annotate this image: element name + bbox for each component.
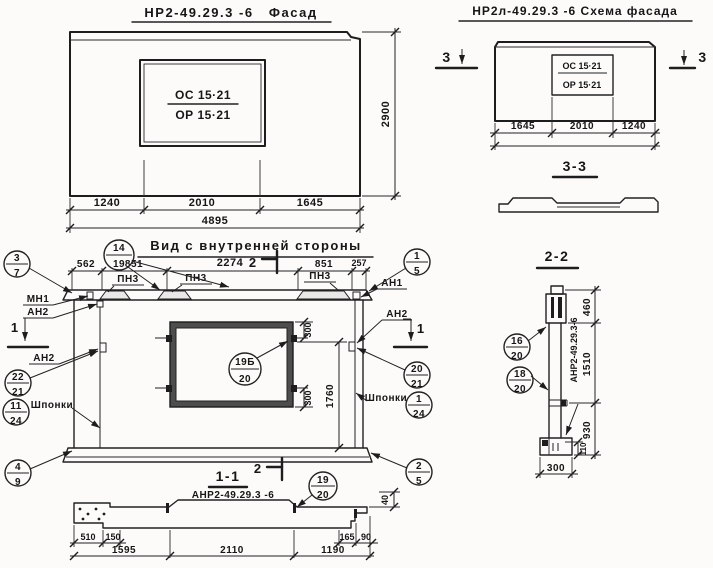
- balloon-3-7: 3 7: [4, 251, 72, 293]
- svg-text:24: 24: [413, 409, 425, 420]
- key-left: [100, 343, 106, 352]
- section-marker-1-left: 1: [8, 318, 48, 347]
- dim-1240: 1240: [94, 197, 120, 209]
- svg-text:20: 20: [411, 364, 423, 375]
- label-an2-left: АН2: [33, 353, 55, 364]
- balloon-4-9: 4 9: [5, 451, 72, 488]
- section-marker-3-right: 3: [670, 49, 708, 68]
- window-opening: [176, 328, 287, 401]
- balloon-2-5: 2 5: [371, 453, 432, 487]
- section-2-2-view: 2-2 16 20: [504, 248, 601, 478]
- drawing-canvas: НР2-49.29.3 -6 Фасад ОС 15·21 ОР 15·21 1…: [0, 0, 713, 568]
- vertical-label-leader: [566, 404, 578, 435]
- dim-300: 300: [547, 463, 565, 474]
- balloon-18-20: 18 20: [507, 367, 548, 395]
- facade-title: НР2-49.29.3 -6 Фасад: [144, 5, 317, 20]
- facade-view: НР2-49.29.3 -6 Фасад ОС 15·21 ОР 15·21 1…: [66, 5, 401, 233]
- svg-text:4: 4: [15, 462, 21, 473]
- svg-text:1: 1: [414, 251, 420, 262]
- label-mn1: МН1: [27, 294, 50, 305]
- label-pn3-3: ПН3: [309, 271, 330, 282]
- dim-930: 930: [582, 421, 593, 439]
- svg-text:21: 21: [411, 379, 423, 390]
- svg-text:22: 22: [12, 372, 24, 383]
- schema-view: НР2л-49.29.3 -6 Схема фасада 3 3 ОС 15·2…: [436, 4, 708, 150]
- section-marker-1-right: 1: [394, 319, 427, 347]
- balloon-1-24: 1 24: [406, 392, 432, 420]
- section-3-3-view: 3-3: [499, 158, 658, 212]
- svg-text:3: 3: [698, 49, 707, 65]
- inner-view: Вид с внутренней стороны: [3, 238, 432, 488]
- pn3-mark-2: [158, 291, 191, 299]
- schema-dimensions: 1645 2010 1240: [490, 97, 660, 150]
- svg-text:24: 24: [10, 416, 22, 427]
- mn1-anchor: [87, 292, 93, 299]
- label-shponki-right: Шпонки: [365, 393, 407, 404]
- label-an2-right: АН2: [386, 309, 408, 320]
- dim-562: 562: [77, 259, 95, 270]
- dim-851-left: 851: [125, 259, 143, 270]
- dim-300-bottom: 300: [303, 390, 313, 405]
- svg-text:1: 1: [11, 320, 19, 335]
- svg-text:2: 2: [416, 461, 422, 472]
- svg-text:19Б: 19Б: [235, 357, 255, 368]
- section-marker-3-left: 3: [436, 49, 477, 68]
- dim-4895: 4895: [202, 215, 228, 227]
- dim-2110: 2110: [220, 545, 244, 556]
- svg-text:19: 19: [317, 475, 329, 486]
- left-labels: МН1 АН2 АН2 Шпонки: [23, 294, 100, 428]
- dim-1595: 1595: [112, 545, 136, 556]
- right-labels: АН1 АН2 Шпонки: [356, 278, 412, 404]
- section-1-1-title: 1-1: [216, 468, 241, 484]
- bottom-flange: [63, 448, 372, 462]
- label-an1: АН1: [381, 278, 403, 289]
- svg-text:18: 18: [514, 369, 526, 380]
- svg-text:1: 1: [416, 394, 422, 405]
- svg-text:20: 20: [511, 351, 523, 362]
- balloon-20-21: 20 21: [357, 348, 430, 390]
- svg-text:20: 20: [514, 384, 526, 395]
- dim-40: 40: [380, 495, 390, 505]
- dim-2010: 2010: [570, 121, 594, 132]
- section-1-1-profile: [74, 500, 367, 528]
- balloon-19-20: 19 20: [297, 472, 337, 507]
- dim-460: 460: [582, 298, 593, 316]
- dim-1190: 1190: [321, 545, 345, 556]
- section-3-3-title: 3-3: [563, 158, 588, 174]
- dim-165: 165: [339, 532, 354, 542]
- pn3-mark-1: [100, 291, 130, 299]
- dim-2900: 2900: [380, 101, 392, 127]
- section-3-3-profile: [499, 198, 658, 212]
- svg-text:2: 2: [249, 255, 257, 270]
- section-2-2-profile: [540, 286, 572, 455]
- dim-110: 110: [579, 442, 588, 455]
- schema-window-mark-top: ОС 15·21: [562, 61, 601, 71]
- dim-257: 257: [351, 258, 366, 268]
- section-1-1-view: 1-1 АНР2-49.29.3 -6 19 20 40: [70, 468, 400, 560]
- svg-text:20: 20: [239, 374, 251, 385]
- inner-window: [155, 322, 308, 407]
- svg-text:20: 20: [317, 490, 329, 501]
- svg-text:11: 11: [10, 401, 22, 412]
- inner-view-title: Вид с внутренней стороны: [150, 238, 362, 253]
- an1-anchor: [353, 292, 360, 299]
- blueprint-sheet: НР2-49.29.3 -6 Фасад ОС 15·21 ОР 15·21 1…: [0, 0, 713, 568]
- dim-2010: 2010: [189, 197, 215, 209]
- svg-text:9: 9: [15, 477, 21, 488]
- balloon-16-20: 16 20: [504, 327, 546, 362]
- dim-1645: 1645: [511, 121, 535, 132]
- schema-window-mark-bottom: ОР 15·21: [563, 80, 602, 90]
- window-dimensions: 300 300 1760: [295, 318, 347, 452]
- dim-1760: 1760: [325, 384, 336, 408]
- facade-dimensions: 1240 2010 1645 4895 2900: [66, 28, 401, 233]
- schema-title: НР2л-49.29.3 -6 Схема фасада: [472, 4, 678, 18]
- svg-text:5: 5: [416, 476, 422, 487]
- section-2-2-dimensions: 460 1510 930 110 300: [535, 286, 601, 478]
- svg-text:14: 14: [113, 243, 125, 254]
- dim-1240: 1240: [622, 121, 646, 132]
- svg-text:3: 3: [14, 253, 20, 264]
- anchor-hook-2: [293, 503, 296, 513]
- dim-90: 90: [361, 532, 371, 542]
- label-shponki-left: Шпонки: [31, 400, 73, 411]
- dim-510: 510: [80, 532, 95, 542]
- facade-window-mark-bottom: ОР 15·21: [175, 108, 230, 122]
- svg-text:5: 5: [414, 266, 420, 277]
- svg-text:7: 7: [14, 268, 20, 279]
- an2-anchor-left: [97, 301, 103, 307]
- svg-text:21: 21: [12, 387, 24, 398]
- label-an2-top-left: АН2: [27, 307, 49, 318]
- section-2-2-vertical-label: АНР2-49.29.3-6: [569, 317, 579, 382]
- facade-window-mark-top: ОС 15·21: [175, 88, 231, 102]
- dim-300-top: 300: [303, 322, 313, 337]
- svg-text:19: 19: [113, 259, 125, 270]
- dim-150: 150: [105, 532, 120, 542]
- svg-text:1: 1: [417, 321, 425, 336]
- pn3-labels: ПН3 ПН3 ПН3: [108, 271, 338, 292]
- section-marker-2-top: 2: [249, 251, 277, 273]
- svg-text:16: 16: [511, 336, 523, 347]
- svg-text:2: 2: [254, 461, 262, 476]
- label-pn3-1: ПН3: [117, 274, 138, 285]
- pn3-mark-3: [297, 291, 350, 299]
- svg-text:3: 3: [442, 49, 451, 65]
- anchor-hook-1: [166, 503, 169, 513]
- anchor-hook-3: [354, 509, 357, 518]
- rebar-dots: [79, 508, 106, 521]
- dim-1510: 1510: [582, 352, 593, 376]
- dim-1645: 1645: [297, 197, 323, 209]
- facade-window-opening: [140, 60, 265, 146]
- key-right: [349, 342, 355, 351]
- balloon-11-24: 11 24: [3, 399, 29, 427]
- section-2-2-title: 2-2: [545, 248, 570, 264]
- dim-851-right: 851: [315, 259, 333, 270]
- dim-2274: 2274: [217, 257, 244, 269]
